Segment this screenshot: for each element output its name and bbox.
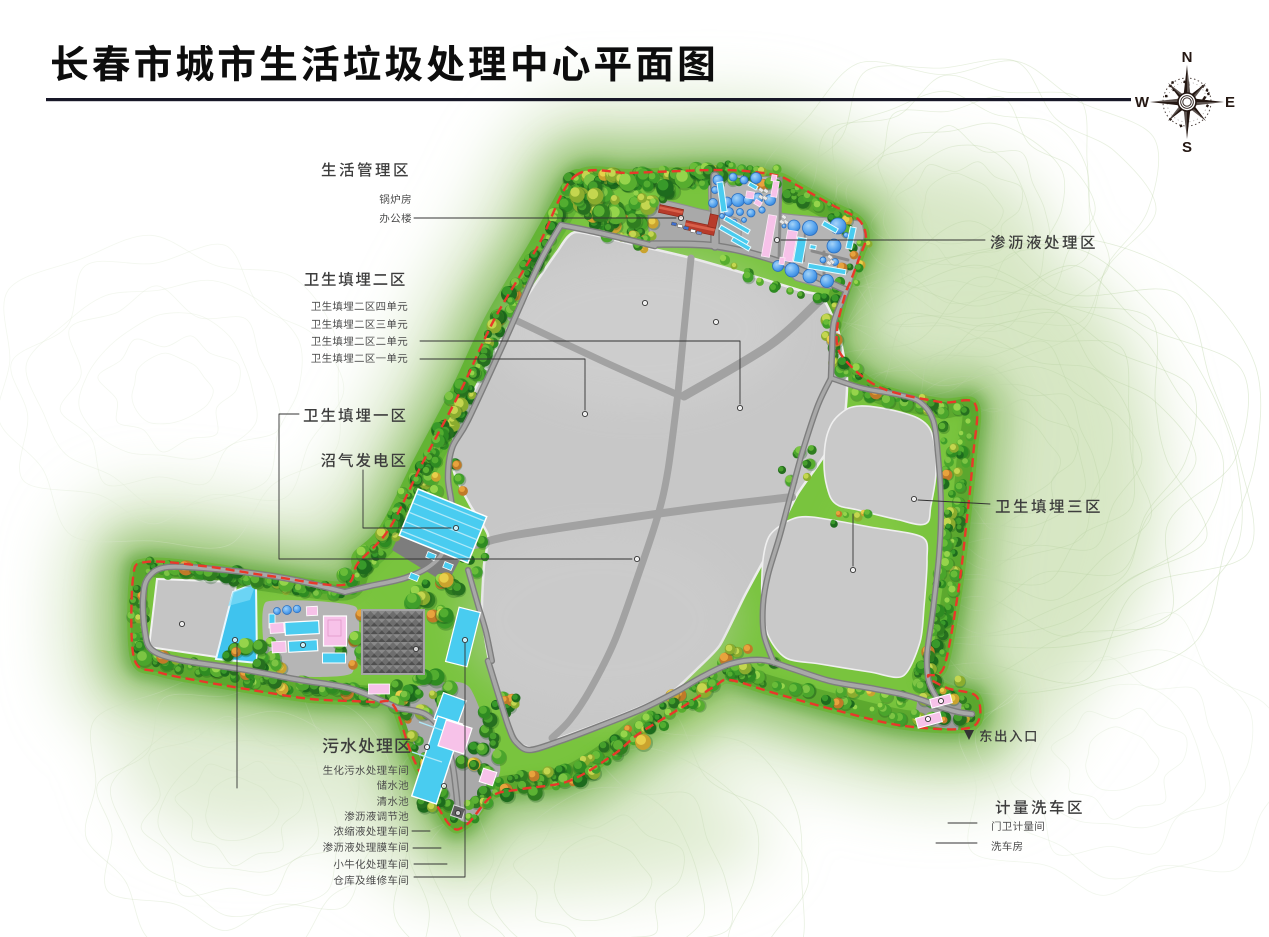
svg-text:E: E [1225, 94, 1235, 111]
svg-text:W: W [1135, 94, 1150, 111]
svg-text:S: S [1182, 139, 1192, 156]
svg-text:N: N [1182, 49, 1193, 66]
